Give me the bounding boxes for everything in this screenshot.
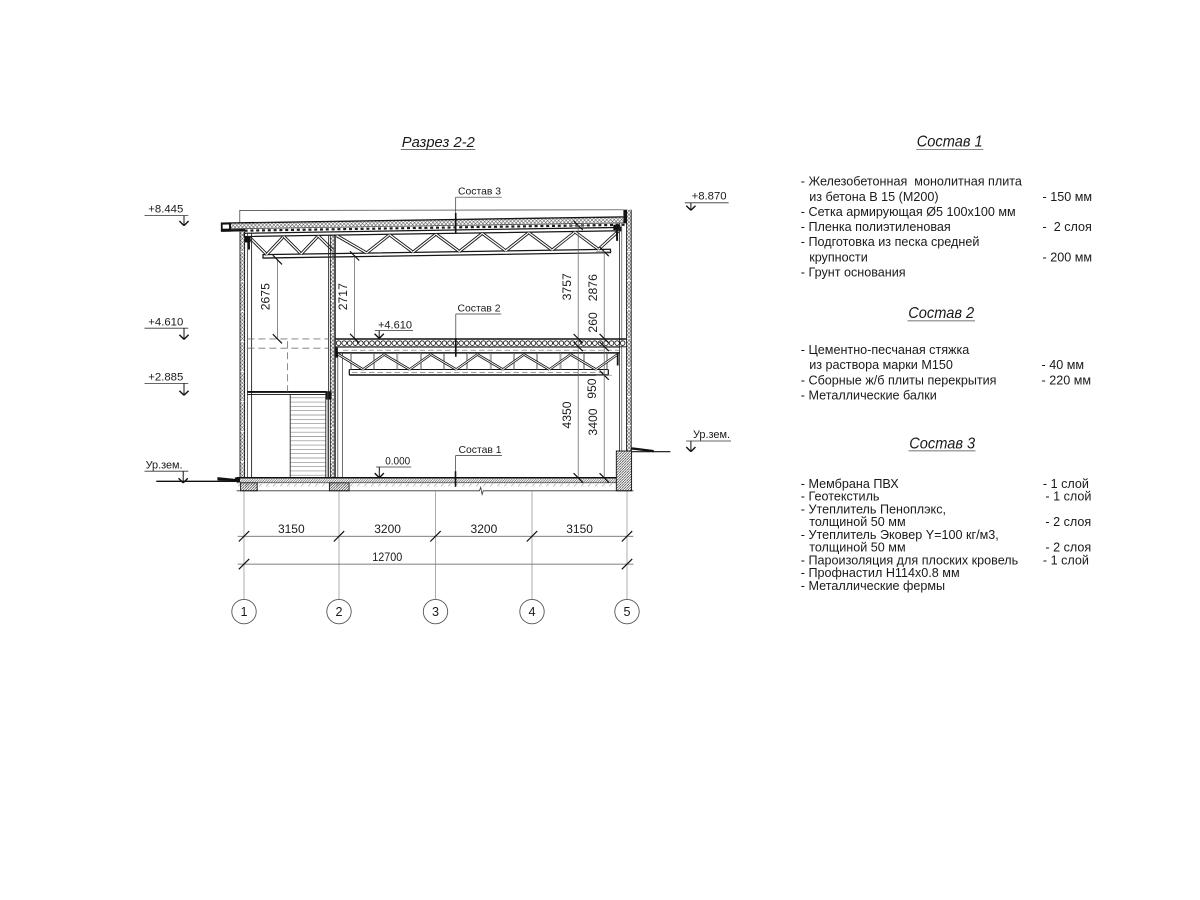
svg-text:- 1 слой: - 1 слой: [1045, 490, 1091, 504]
svg-text:- 1 слой: - 1 слой: [1043, 553, 1089, 567]
svg-text:+8.870: +8.870: [692, 191, 727, 203]
svg-text:- Железобетонная монолитная п: - Железобетонная монолитная плита: [801, 175, 1022, 189]
svg-text:Состав 3: Состав 3: [909, 435, 975, 452]
svg-text:Ур.зем.: Ур.зем.: [693, 429, 730, 441]
svg-text:3: 3: [432, 605, 439, 619]
svg-text:1: 1: [240, 605, 247, 619]
svg-text:Состав 2: Состав 2: [908, 305, 974, 322]
svg-text:2717: 2717: [336, 283, 350, 310]
svg-text:2876: 2876: [586, 274, 600, 301]
svg-text:+2.885: +2.885: [148, 372, 183, 384]
svg-text:- Пленка полиэтиленовая: - Пленка полиэтиленовая: [801, 220, 951, 234]
svg-text:из бетона В 15 (М200): из бетона В 15 (М200): [809, 190, 938, 204]
svg-text:12700: 12700: [372, 550, 402, 564]
svg-text:- 150 мм: - 150 мм: [1043, 190, 1093, 204]
svg-text:- 200 мм: - 200 мм: [1043, 250, 1093, 264]
svg-text:- Грунт основания: - Грунт основания: [801, 266, 906, 280]
svg-text:- Металлические балки: - Металлические балки: [801, 389, 937, 403]
svg-text:3757: 3757: [560, 273, 574, 300]
svg-text:+8.445: +8.445: [148, 204, 183, 216]
svg-text:Состав 1: Состав 1: [459, 445, 502, 456]
svg-text:Состав 1: Состав 1: [917, 134, 983, 151]
svg-text:- 2 слоя: - 2 слоя: [1045, 515, 1091, 529]
svg-text:4: 4: [528, 605, 535, 619]
svg-text:- Подготовка из песка средней: - Подготовка из песка средней: [801, 235, 980, 249]
svg-text:0.000: 0.000: [385, 456, 410, 468]
svg-text:- Цементно-песчаная стяжка: - Цементно-песчаная стяжка: [801, 343, 969, 357]
svg-text:- Металлические фермы: - Металлические фермы: [801, 579, 945, 593]
svg-text:+4.610: +4.610: [148, 316, 183, 328]
svg-text:3200: 3200: [374, 522, 401, 536]
svg-text:крупности: крупности: [809, 250, 868, 264]
svg-text:3400: 3400: [586, 408, 600, 435]
svg-text:- 40 мм: - 40 мм: [1042, 358, 1085, 372]
svg-text:- 220 мм: - 220 мм: [1042, 373, 1092, 387]
svg-text:3150: 3150: [278, 522, 305, 536]
svg-text:Разрез 2-2: Разрез 2-2: [402, 134, 476, 151]
svg-text:3150: 3150: [566, 522, 593, 536]
svg-text:- Сетка армирующая Ø5 100х100: - Сетка армирующая Ø5 100х100 мм: [801, 205, 1016, 219]
svg-text:- Сборные ж/б плиты перекрытия: - Сборные ж/б плиты перекрытия: [801, 373, 997, 387]
svg-text:5: 5: [623, 605, 630, 619]
svg-text:950: 950: [585, 378, 599, 399]
svg-text:Состав 2: Состав 2: [458, 304, 501, 315]
svg-text:260: 260: [586, 312, 600, 333]
svg-text:из раствора марки М150: из раствора марки М150: [809, 358, 953, 372]
svg-text:+4.610: +4.610: [378, 319, 412, 331]
svg-text:4350: 4350: [560, 401, 574, 428]
svg-text:Ур.зем.: Ур.зем.: [146, 459, 183, 471]
svg-text:2: 2: [335, 605, 342, 619]
svg-text:Состав 3: Состав 3: [458, 187, 501, 198]
svg-text:2675: 2675: [258, 283, 272, 310]
svg-text:3200: 3200: [471, 522, 498, 536]
svg-text:- 2 слоя: - 2 слоя: [1043, 220, 1092, 234]
